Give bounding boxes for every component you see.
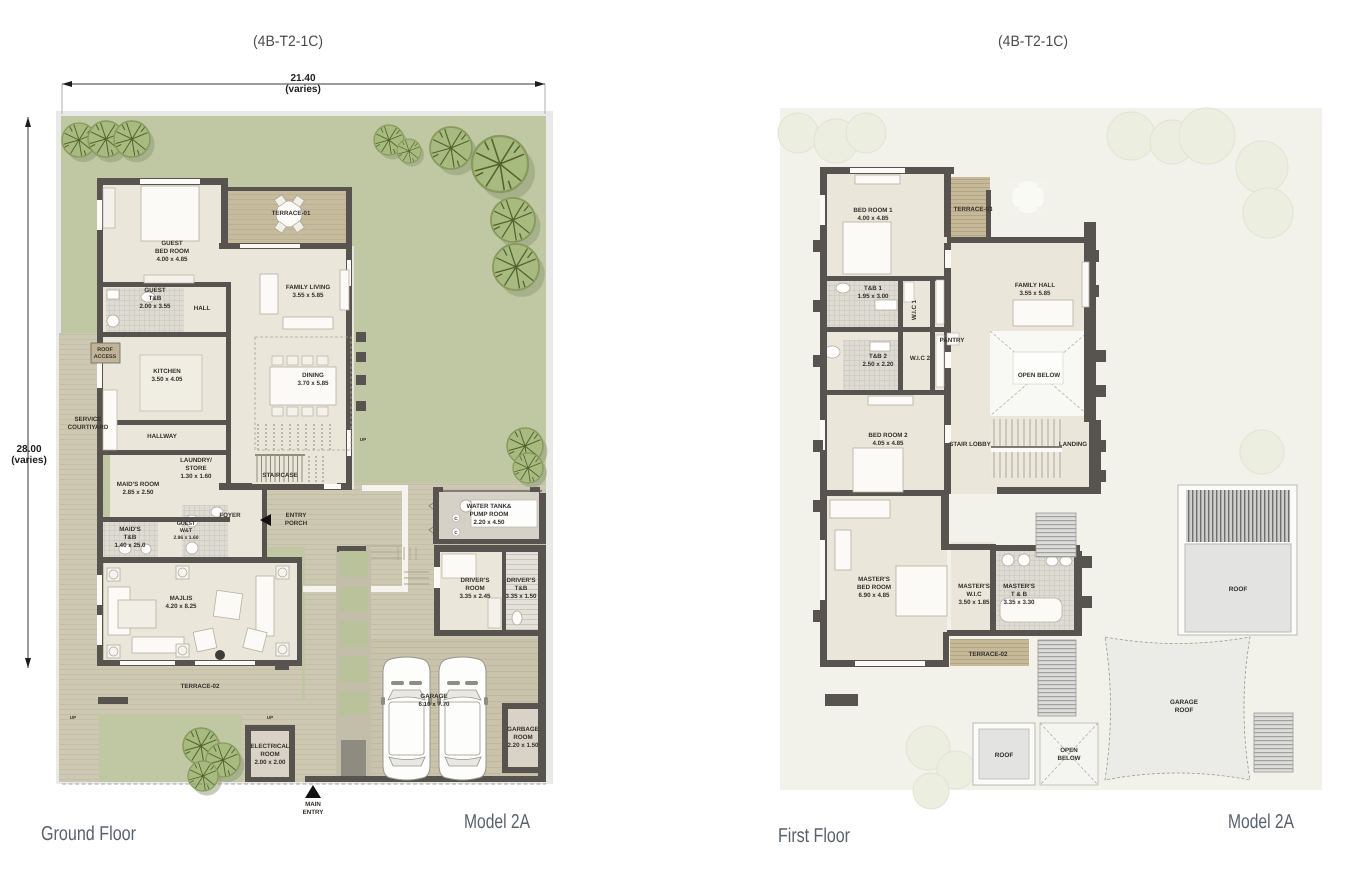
svg-text:ELECTRICAL: ELECTRICAL bbox=[250, 743, 289, 750]
svg-text:PORCH: PORCH bbox=[285, 520, 308, 527]
svg-text:DRIVER'S: DRIVER'S bbox=[461, 577, 490, 584]
svg-text:BED ROOM 2: BED ROOM 2 bbox=[868, 432, 908, 439]
svg-text:GUEST: GUEST bbox=[144, 287, 166, 294]
svg-text:6.10 x 7.70: 6.10 x 7.70 bbox=[419, 701, 451, 708]
svg-text:MASTER'S: MASTER'S bbox=[858, 576, 890, 583]
svg-text:21.40: 21.40 bbox=[290, 73, 315, 84]
svg-text:MAIN: MAIN bbox=[305, 801, 321, 808]
svg-text:Model 2A: Model 2A bbox=[1228, 811, 1295, 833]
svg-text:1.30 x 1.60: 1.30 x 1.60 bbox=[181, 473, 213, 480]
svg-text:ROOM: ROOM bbox=[465, 585, 484, 592]
svg-text:FAMILY HALL: FAMILY HALL bbox=[1015, 282, 1055, 289]
svg-text:Ground Floor: Ground Floor bbox=[41, 823, 136, 845]
svg-text:ROOF: ROOF bbox=[995, 752, 1014, 759]
svg-text:ROOM: ROOM bbox=[513, 734, 532, 741]
svg-text:STAIRCASE: STAIRCASE bbox=[262, 472, 297, 479]
svg-text:GARAGE: GARAGE bbox=[1170, 699, 1199, 706]
svg-text:2.00 x 2.00: 2.00 x 2.00 bbox=[255, 759, 287, 766]
svg-text:(4B-T2-1C): (4B-T2-1C) bbox=[253, 33, 323, 50]
svg-text:3.55 x 5.85: 3.55 x 5.85 bbox=[293, 292, 325, 299]
svg-text:GUEST: GUEST bbox=[177, 521, 196, 527]
svg-text:W&T: W&T bbox=[180, 528, 193, 534]
svg-text:ROOF: ROOF bbox=[97, 347, 113, 353]
svg-text:MAID'S: MAID'S bbox=[119, 526, 140, 533]
svg-text:UP: UP bbox=[70, 715, 76, 720]
svg-text:2.20 x 1.50: 2.20 x 1.50 bbox=[508, 742, 540, 749]
svg-text:WATER TANK&: WATER TANK& bbox=[467, 503, 512, 510]
svg-text:4.00 x 4.85: 4.00 x 4.85 bbox=[858, 215, 890, 222]
svg-text:ROOM: ROOM bbox=[260, 751, 279, 758]
svg-text:GARAGE: GARAGE bbox=[420, 693, 447, 700]
svg-text:BED ROOM 1: BED ROOM 1 bbox=[853, 207, 893, 214]
svg-text:TERRACE-02: TERRACE-02 bbox=[181, 683, 220, 690]
svg-text:1.40 x 25.0: 1.40 x 25.0 bbox=[115, 542, 147, 549]
svg-text:MASTER'S: MASTER'S bbox=[958, 583, 990, 590]
svg-text:PUMP ROOM: PUMP ROOM bbox=[470, 511, 509, 518]
svg-text:BELOW: BELOW bbox=[1057, 755, 1080, 762]
svg-text:28.00: 28.00 bbox=[16, 444, 41, 455]
svg-text:T & B: T & B bbox=[1011, 591, 1028, 598]
svg-text:6.90 x 4.85: 6.90 x 4.85 bbox=[859, 592, 891, 599]
svg-text:TERRACE-01: TERRACE-01 bbox=[272, 210, 311, 217]
svg-text:2.96 x 1.60: 2.96 x 1.60 bbox=[173, 535, 198, 541]
svg-text:(varies): (varies) bbox=[285, 84, 321, 95]
svg-text:T&B: T&B bbox=[515, 585, 528, 592]
svg-text:(4B-T2-1C): (4B-T2-1C) bbox=[998, 33, 1068, 50]
svg-text:W.I.C: W.I.C bbox=[966, 591, 982, 598]
svg-text:MASTER'S: MASTER'S bbox=[1003, 583, 1035, 590]
svg-text:COURTIYARD: COURTIYARD bbox=[68, 424, 109, 431]
svg-text:2.50 x 2.20: 2.50 x 2.20 bbox=[863, 361, 895, 368]
svg-text:2.00 x 3.55: 2.00 x 3.55 bbox=[140, 303, 172, 310]
svg-text:3.35 x 2.45: 3.35 x 2.45 bbox=[460, 593, 492, 600]
svg-text:DINING: DINING bbox=[302, 372, 324, 379]
svg-text:Model 2A: Model 2A bbox=[464, 811, 531, 833]
svg-text:ENTRY: ENTRY bbox=[286, 512, 308, 519]
svg-text:LAUNDRY/: LAUNDRY/ bbox=[180, 457, 212, 464]
svg-text:4.20 x 8.25: 4.20 x 8.25 bbox=[166, 603, 198, 610]
svg-text:2.20 x 4.50: 2.20 x 4.50 bbox=[474, 519, 506, 526]
svg-text:MAJLIS: MAJLIS bbox=[170, 595, 193, 602]
svg-text:BED ROOM: BED ROOM bbox=[155, 248, 189, 255]
svg-text:SERVICE: SERVICE bbox=[74, 416, 101, 423]
svg-text:FAMILY LIVING: FAMILY LIVING bbox=[286, 284, 331, 291]
svg-text:T&B: T&B bbox=[149, 295, 162, 302]
svg-text:ACCESS: ACCESS bbox=[94, 354, 117, 360]
svg-text:4.05 x 4.85: 4.05 x 4.85 bbox=[873, 440, 905, 447]
svg-text:T&B 2: T&B 2 bbox=[869, 353, 887, 360]
svg-text:DRIVER'S: DRIVER'S bbox=[507, 577, 536, 584]
svg-text:ROOF: ROOF bbox=[1175, 707, 1194, 714]
svg-text:KITCHEN: KITCHEN bbox=[153, 368, 181, 375]
svg-text:3.50 x 1.85: 3.50 x 1.85 bbox=[959, 599, 991, 606]
svg-text:LANDING: LANDING bbox=[1059, 441, 1087, 448]
svg-text:GUEST: GUEST bbox=[161, 240, 183, 247]
svg-text:3.70 x 5.85: 3.70 x 5.85 bbox=[298, 380, 330, 387]
svg-text:TERRACE-02: TERRACE-02 bbox=[969, 651, 1008, 658]
svg-text:UP: UP bbox=[267, 715, 273, 720]
svg-text:W.I.C 1: W.I.C 1 bbox=[911, 299, 918, 320]
svg-text:STORE: STORE bbox=[185, 465, 206, 472]
svg-text:OPEN: OPEN bbox=[1060, 747, 1078, 754]
svg-text:First Floor: First Floor bbox=[778, 825, 850, 847]
svg-text:GARBAGE: GARBAGE bbox=[507, 726, 539, 733]
svg-text:TERRACE-03: TERRACE-03 bbox=[954, 206, 993, 213]
svg-text:3.35 x 3.30: 3.35 x 3.30 bbox=[1004, 599, 1036, 606]
svg-text:3.55 x 5.85: 3.55 x 5.85 bbox=[1020, 290, 1052, 297]
svg-text:UP: UP bbox=[360, 437, 366, 442]
svg-text:3.50 x 4.05: 3.50 x 4.05 bbox=[152, 376, 184, 383]
svg-text:HALL: HALL bbox=[194, 305, 211, 312]
svg-text:BED ROOM: BED ROOM bbox=[857, 584, 891, 591]
svg-text:3.35 x 1.50: 3.35 x 1.50 bbox=[506, 593, 538, 600]
svg-text:OPEN BELOW: OPEN BELOW bbox=[1018, 372, 1060, 379]
svg-text:T&B: T&B bbox=[124, 534, 137, 541]
svg-text:FOYER: FOYER bbox=[219, 512, 241, 519]
svg-text:PANTRY: PANTRY bbox=[940, 337, 966, 344]
svg-text:1.95 x 3.00: 1.95 x 3.00 bbox=[858, 293, 890, 300]
svg-text:ENTRY: ENTRY bbox=[303, 809, 325, 816]
svg-text:T&B 1: T&B 1 bbox=[864, 285, 882, 292]
svg-text:HALLWAY: HALLWAY bbox=[147, 433, 178, 440]
svg-text:ROOF: ROOF bbox=[1229, 586, 1248, 593]
svg-text:MAID'S ROOM: MAID'S ROOM bbox=[117, 481, 159, 488]
svg-text:W.I.C 2: W.I.C 2 bbox=[910, 355, 931, 362]
svg-text:(varies): (varies) bbox=[11, 455, 47, 466]
svg-text:4.00 x 4.85: 4.00 x 4.85 bbox=[157, 256, 189, 263]
svg-text:2.85 x 2.50: 2.85 x 2.50 bbox=[123, 489, 155, 496]
svg-text:STAIR LOBBY: STAIR LOBBY bbox=[949, 441, 991, 448]
